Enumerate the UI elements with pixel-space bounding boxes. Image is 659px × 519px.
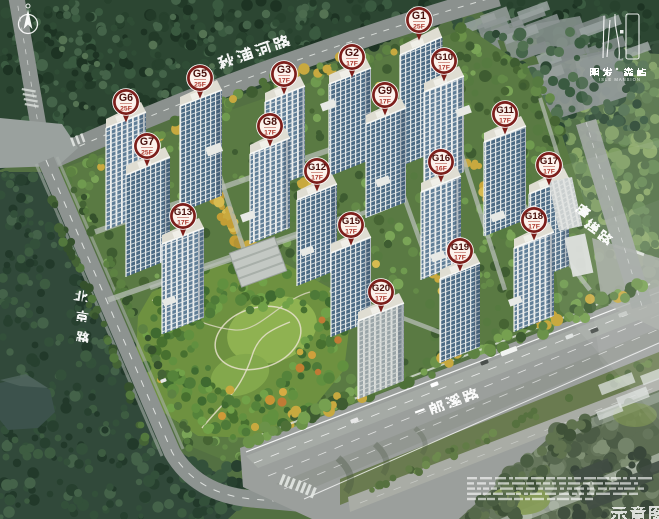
- svg-text:G8: G8: [263, 116, 277, 128]
- svg-text:G1: G1: [412, 10, 426, 22]
- svg-text:17F: 17F: [345, 229, 357, 236]
- svg-text:17F: 17F: [278, 78, 290, 85]
- svg-text:G6: G6: [119, 92, 133, 104]
- svg-text:G5: G5: [193, 68, 207, 80]
- svg-text:G19: G19: [451, 242, 469, 253]
- svg-text:G12: G12: [308, 162, 326, 173]
- svg-text:G7: G7: [140, 136, 154, 148]
- svg-text:17F: 17F: [375, 296, 387, 303]
- svg-text:G18: G18: [525, 211, 544, 222]
- svg-text:G17: G17: [540, 156, 558, 167]
- svg-text:17F: 17F: [311, 175, 323, 182]
- svg-text:17F: 17F: [346, 61, 358, 68]
- svg-text:G2: G2: [345, 47, 359, 59]
- svg-text:25F: 25F: [194, 82, 206, 89]
- svg-text:G3: G3: [277, 64, 291, 76]
- svg-text:25F: 25F: [413, 24, 425, 31]
- svg-text:G16: G16: [432, 153, 450, 164]
- svg-text:17F: 17F: [499, 118, 511, 125]
- svg-text:17F: 17F: [264, 130, 276, 137]
- svg-text:G9: G9: [378, 85, 392, 97]
- svg-text:25F: 25F: [141, 150, 153, 157]
- svg-text:ISLE MANSION: ISLE MANSION: [599, 77, 641, 82]
- svg-text:17F: 17F: [438, 65, 450, 72]
- svg-text:25F: 25F: [120, 106, 132, 113]
- svg-text:G15: G15: [342, 216, 361, 227]
- svg-text:16F: 16F: [435, 166, 447, 173]
- svg-text:G20: G20: [372, 283, 390, 294]
- svg-text:17F: 17F: [177, 220, 189, 227]
- svg-text:17F: 17F: [528, 224, 540, 231]
- svg-text:17F: 17F: [543, 169, 555, 176]
- svg-text:17F: 17F: [379, 99, 391, 106]
- svg-text:17F: 17F: [454, 255, 466, 262]
- svg-text:G11: G11: [496, 105, 514, 116]
- svg-text:G13: G13: [174, 207, 192, 218]
- svg-text:G10: G10: [435, 52, 453, 63]
